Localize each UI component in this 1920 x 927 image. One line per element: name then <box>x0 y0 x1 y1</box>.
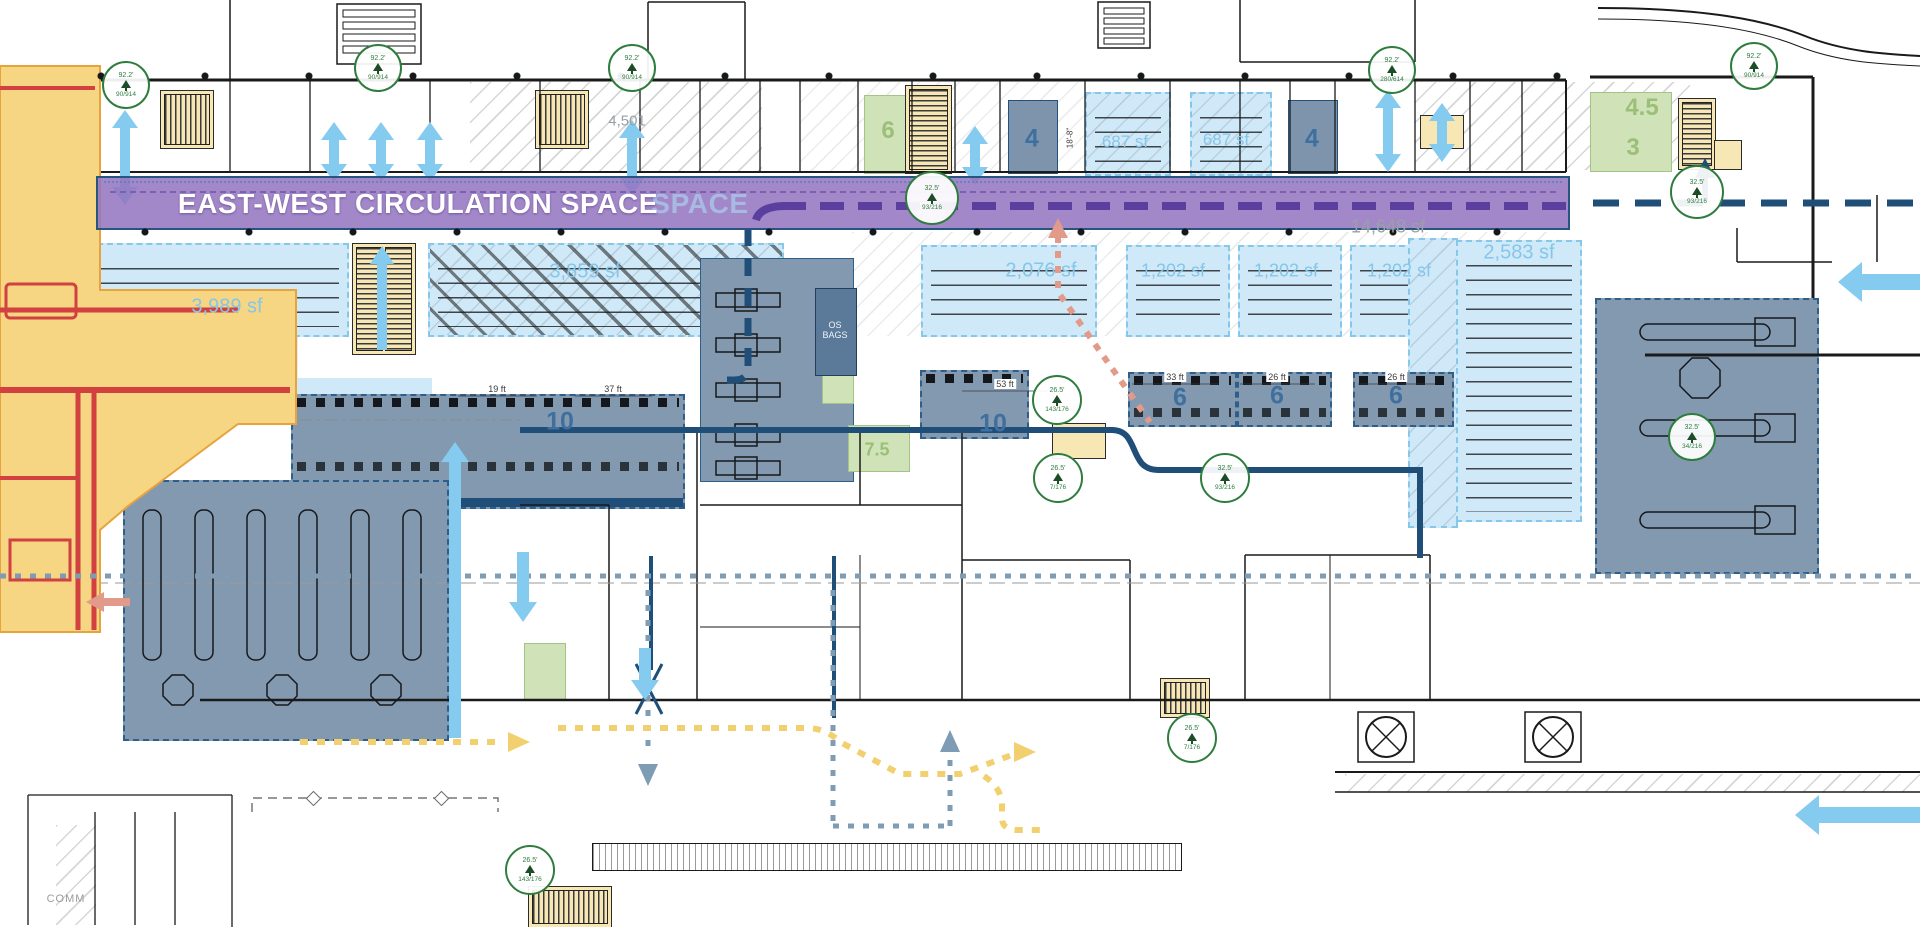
tree-icon <box>1687 432 1697 440</box>
tree-icon <box>1052 395 1062 403</box>
dim-18-8: 18'-8" <box>1066 128 1075 148</box>
count-checkin-east: 10 <box>979 410 1007 439</box>
elevation-marker-11: 32.5' 34/216 <box>1668 413 1716 461</box>
marker-elevation: 32.5' <box>1690 179 1705 186</box>
area-label-far-east: 2,583 sf <box>1483 242 1554 265</box>
area-label-holdroom-west-2: 3,859 sf <box>549 261 620 284</box>
marker-elevation: 32.5' <box>925 185 940 192</box>
marker-ref: 34/216 <box>1682 444 1702 451</box>
count-green-room: 7.5 <box>864 440 889 461</box>
os-bags-text: OS BAGS <box>820 321 850 341</box>
tree-icon <box>1692 187 1702 195</box>
tree-icon <box>1387 65 1397 73</box>
marker-elevation: 26.5' <box>523 857 538 864</box>
tree-icon <box>373 63 383 71</box>
marker-elevation: 92.2' <box>625 55 640 62</box>
tree-icon <box>121 80 131 88</box>
band-title-ghost: SPACE <box>651 188 748 220</box>
elevation-marker-3: 92.2' 90/914 <box>608 44 656 92</box>
area-label-east-2: 1,202 sf <box>1254 261 1318 282</box>
dim-37ft: 37 ft <box>602 384 624 394</box>
dim-26ft-b: 26 ft <box>1385 372 1407 382</box>
marker-elevation: 92.2' <box>119 72 134 79</box>
marker-elevation: 32.5' <box>1685 424 1700 431</box>
marker-ref: 90/914 <box>1744 73 1764 80</box>
marker-ref: 7/176 <box>1184 745 1200 752</box>
elevation-marker-2: 92.2' 90/914 <box>354 44 402 92</box>
count-restroom-east-a: 4.5 <box>1625 94 1658 122</box>
dim-53ft: 53 ft <box>994 379 1016 389</box>
area-label-687-a: 687 sf <box>1102 132 1148 152</box>
elevation-marker-9: 26.5' 7/176 <box>1033 453 1083 503</box>
elevation-marker-10: 32.5' 93/216 <box>1200 453 1250 503</box>
elevation-marker-12: 26.5' 7/176 <box>1167 713 1217 763</box>
tree-icon <box>1187 733 1197 741</box>
area-label-holdroom-west: 3,989 sf <box>191 296 262 319</box>
marker-elevation: 26.5' <box>1185 725 1200 732</box>
marker-ref: 93/216 <box>1687 199 1707 206</box>
marker-ref: 7/176 <box>1050 485 1066 492</box>
marker-ref: 90/914 <box>622 75 642 82</box>
count-restroom-center: 6 <box>881 117 894 145</box>
os-bags-label: OS BAGS <box>820 321 850 341</box>
dim-33ft: 33 ft <box>1164 372 1186 382</box>
marker-elevation: 32.5' <box>1218 465 1233 472</box>
marker-elevation: 26.5' <box>1050 387 1065 394</box>
count-room4-east: 4 <box>1305 125 1319 154</box>
elevation-marker-1: 92.2' 90/914 <box>102 61 150 109</box>
count-checkin-west: 10 <box>546 408 574 437</box>
marker-elevation: 92.2' <box>371 55 386 62</box>
tree-icon <box>927 193 937 201</box>
area-label-687-b: 687 sf <box>1203 130 1249 150</box>
elevation-marker-6: 92.2' 90/914 <box>1730 42 1778 90</box>
elevation-marker-13: 26.5' 143/176 <box>505 845 555 895</box>
count-gate-1: 6 <box>1173 384 1187 413</box>
marker-ref: 143/176 <box>518 877 542 884</box>
tree-icon <box>525 865 535 873</box>
tree-icon <box>1749 61 1759 69</box>
elevation-marker-4: 32.5' 93/216 <box>905 171 959 225</box>
count-room4-west: 4 <box>1025 125 1039 154</box>
marker-ref: 90/914 <box>368 75 388 82</box>
tree-icon <box>627 63 637 71</box>
area-label-circulation: 14,648 sf <box>1351 217 1425 238</box>
count-gate-2: 6 <box>1270 382 1284 411</box>
elevation-marker-5: 92.2' 280/614 <box>1368 46 1416 94</box>
area-label-holdroom-mid: 2,076 sf <box>1005 260 1076 283</box>
area-label-east-1: 1,202 sf <box>1141 261 1205 282</box>
count-restroom-east-b: 3 <box>1626 134 1639 162</box>
terminal-floor-plan: EAST-WEST CIRCULATION SPACE SPACE 3,989 … <box>0 0 1920 927</box>
area-label-east-3: 1,202 sf <box>1367 261 1431 282</box>
route-purple-hook <box>756 206 786 220</box>
marker-ref: 143/176 <box>1045 407 1069 414</box>
marker-elevation: 92.2' <box>1747 53 1762 60</box>
marker-ref: 93/216 <box>1215 485 1235 492</box>
tree-icon <box>1220 473 1230 481</box>
elevation-marker-7: 32.5' 93/216 <box>1670 165 1724 219</box>
count-gate-3: 6 <box>1389 382 1403 411</box>
area-label-corridor: 4,501 <box>608 113 646 130</box>
dim-26ft-a: 26 ft <box>1266 372 1288 382</box>
tree-icon <box>1053 473 1063 481</box>
salmon-arrow-up <box>1048 218 1068 238</box>
marker-ref: 280/614 <box>1380 77 1404 84</box>
marker-elevation: 92.2' <box>1385 57 1400 64</box>
elevation-marker-8: 26.5' 143/176 <box>1032 375 1082 425</box>
dim-19ft: 19 ft <box>486 384 508 394</box>
marker-elevation: 26.5' <box>1051 465 1066 472</box>
band-title: EAST-WEST CIRCULATION SPACE <box>178 188 658 220</box>
marker-ref: 93/216 <box>922 205 942 212</box>
marker-ref: 90/914 <box>116 92 136 99</box>
comm-room-label: COMM <box>47 893 86 905</box>
